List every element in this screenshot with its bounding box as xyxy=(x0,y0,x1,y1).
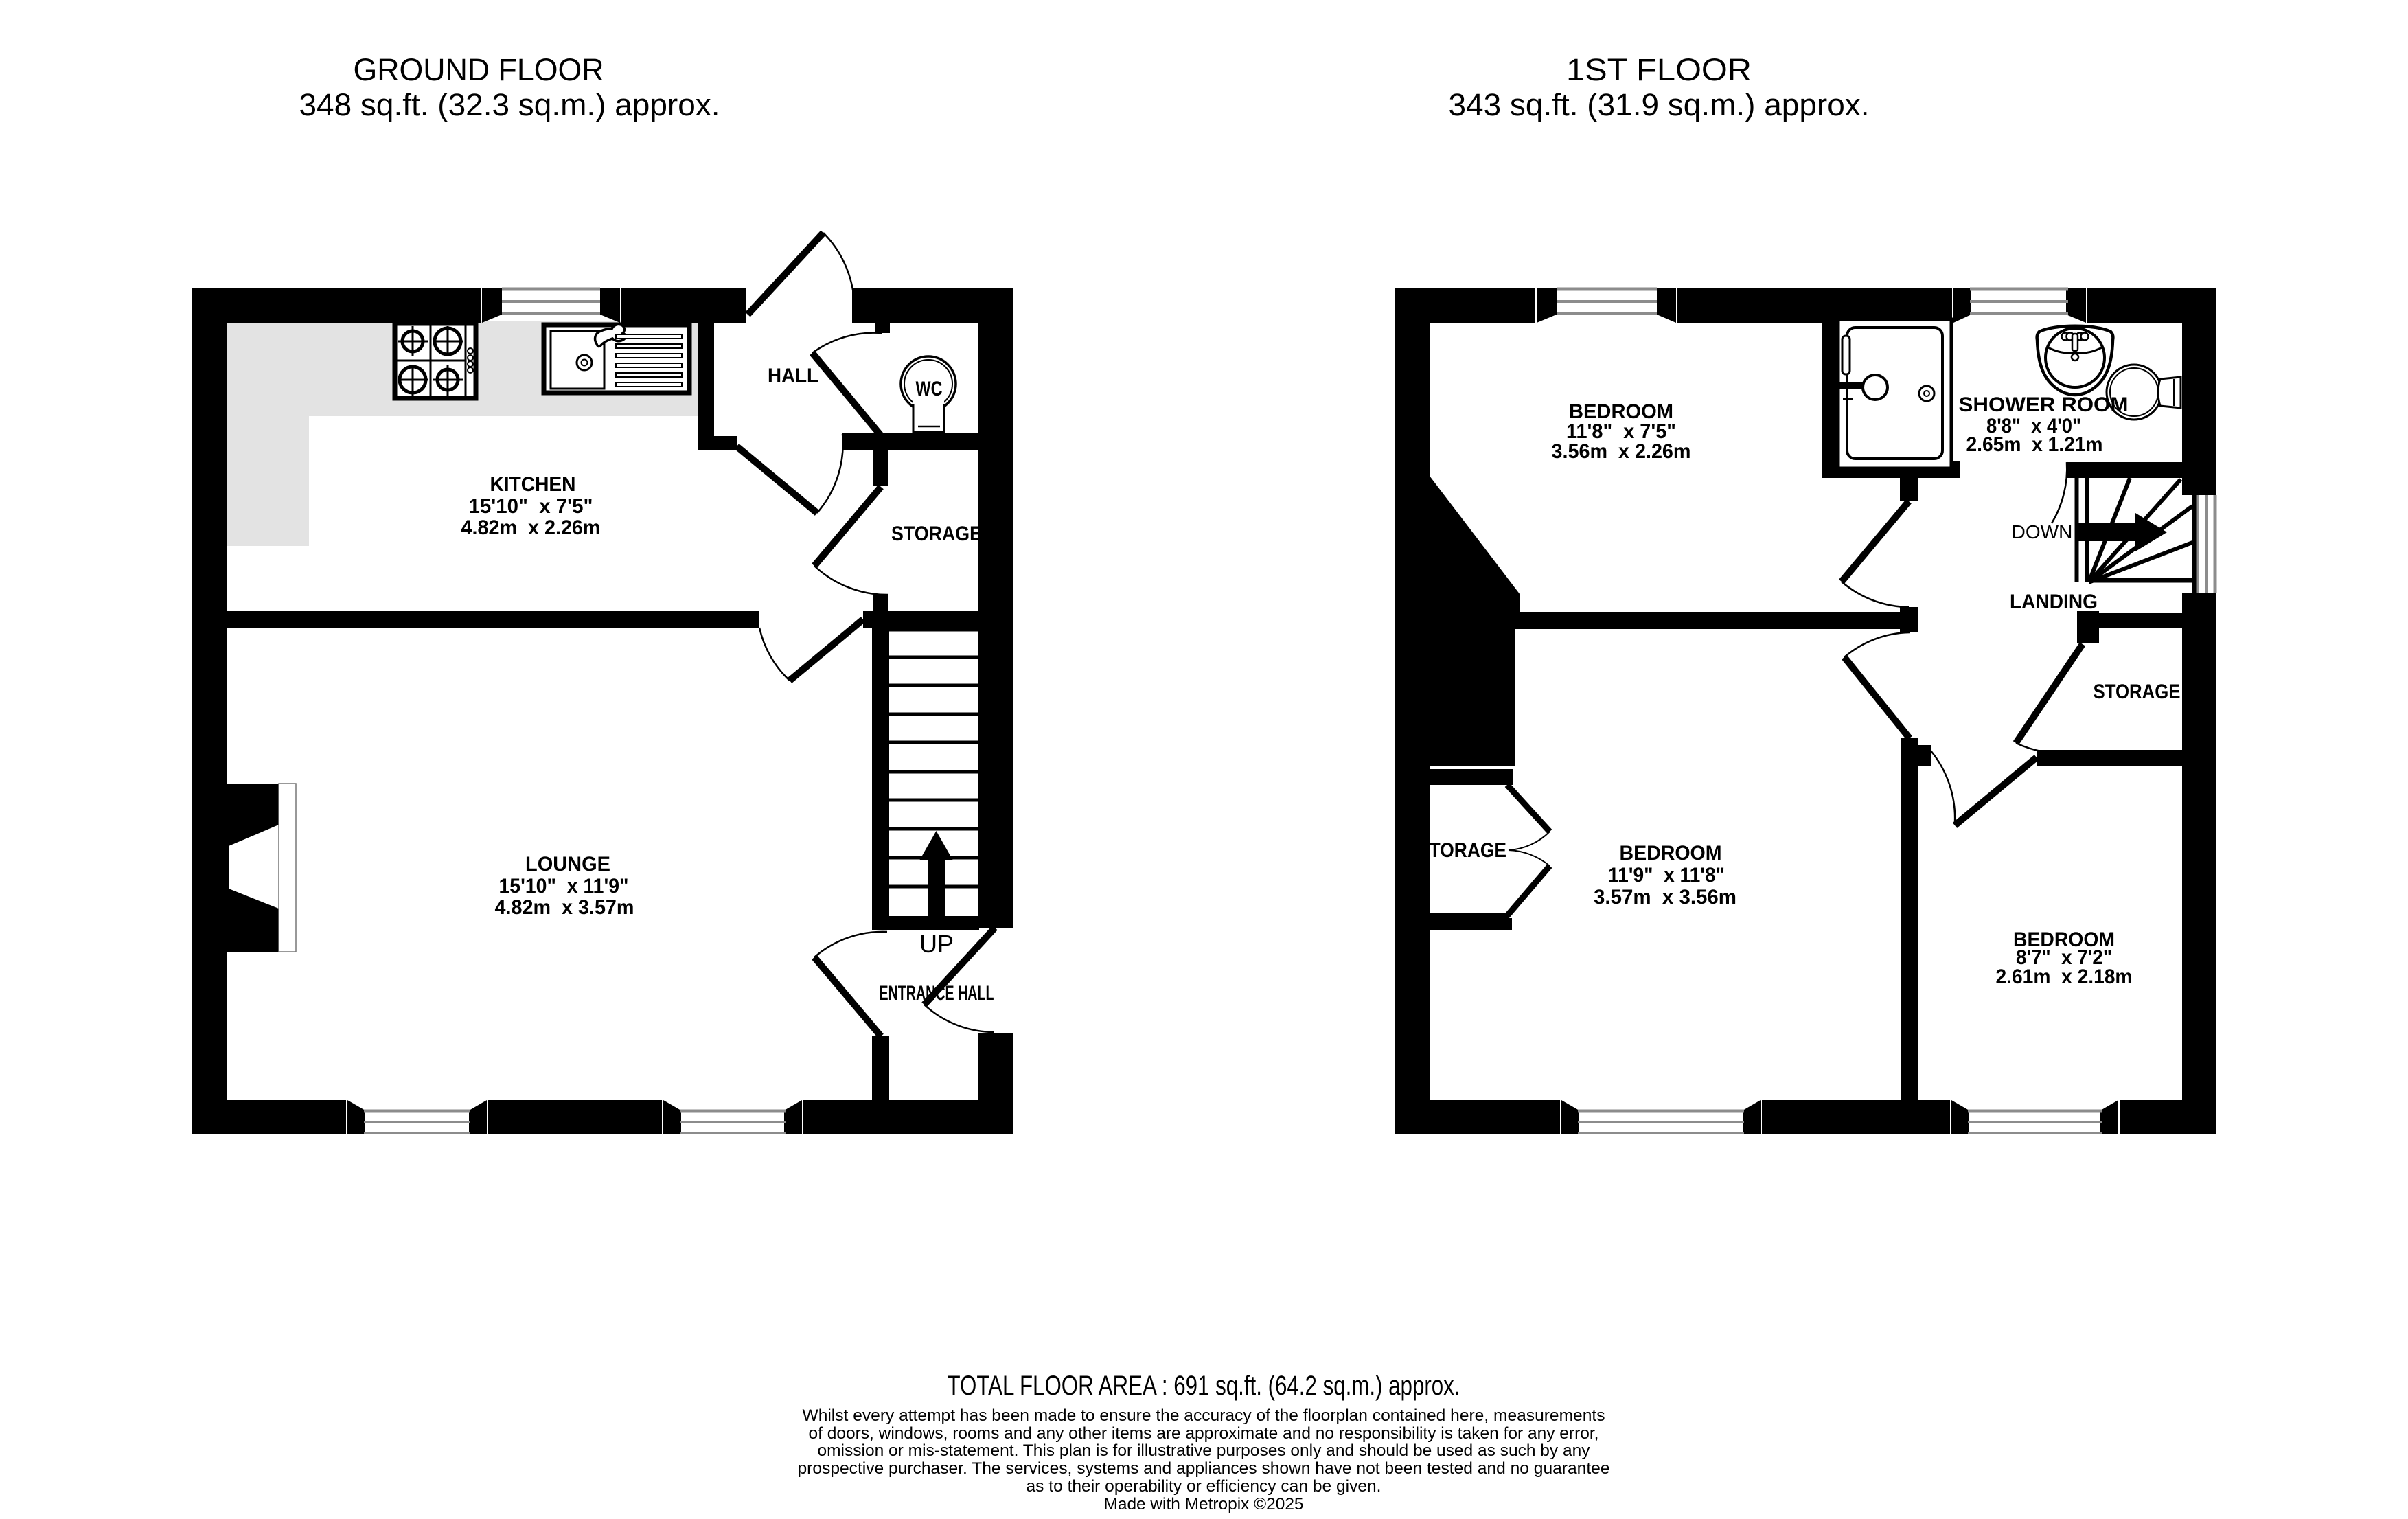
svg-text:BEDROOM: BEDROOM xyxy=(1620,842,1722,865)
svg-text:343 sq.ft. (31.9 sq.m.) approx: 343 sq.ft. (31.9 sq.m.) approx. xyxy=(1449,87,1870,122)
svg-text:STORAGE: STORAGE xyxy=(1417,839,1506,862)
svg-text:TOTAL FLOOR AREA : 691 sq.ft.: TOTAL FLOOR AREA : 691 sq.ft. (64.2 sq.m… xyxy=(948,1371,1460,1401)
svg-text:15'10" x 11'9": 15'10" x 11'9" xyxy=(499,875,629,898)
svg-text:1ST FLOOR: 1ST FLOOR xyxy=(1566,52,1752,87)
svg-text:11'9" x 11'8": 11'9" x 11'8" xyxy=(1608,864,1725,887)
svg-text:STORAGE: STORAGE xyxy=(891,523,982,545)
svg-text:omission or mis-statement. Thi: omission or mis-statement. This plan is … xyxy=(818,1441,1590,1460)
svg-text:KITCHEN: KITCHEN xyxy=(490,473,576,496)
svg-text:UP: UP xyxy=(919,930,954,958)
svg-text:SHOWER ROOM: SHOWER ROOM xyxy=(1959,393,2129,416)
svg-text:3.57m x 3.56m: 3.57m x 3.56m xyxy=(1594,886,1736,909)
svg-text:of doors, windows, rooms and a: of doors, windows, rooms and any other i… xyxy=(809,1424,1599,1443)
svg-text:LOUNGE: LOUNGE xyxy=(525,853,610,876)
svg-text:2.65m x 1.21m: 2.65m x 1.21m xyxy=(1966,433,2103,456)
svg-text:2.61m x 2.18m: 2.61m x 2.18m xyxy=(1996,966,2133,988)
svg-text:as to their operability or eff: as to their operability or efficiency ca… xyxy=(1027,1477,1381,1496)
svg-text:GROUND FLOOR: GROUND FLOOR xyxy=(354,52,604,87)
svg-text:15'10" x 7'5": 15'10" x 7'5" xyxy=(469,495,593,518)
svg-text:ENTRANCE HALL: ENTRANCE HALL xyxy=(880,982,994,1005)
svg-text:LANDING: LANDING xyxy=(2010,591,2098,613)
svg-text:Made with Metropix ©2025: Made with Metropix ©2025 xyxy=(1104,1495,1304,1514)
svg-text:STORAGE: STORAGE xyxy=(2094,681,2181,703)
svg-text:DOWN: DOWN xyxy=(2012,521,2073,542)
svg-text:348 sq.ft. (32.3 sq.m.) approx: 348 sq.ft. (32.3 sq.m.) approx. xyxy=(299,87,720,122)
svg-text:WC: WC xyxy=(916,378,943,400)
svg-text:prospective purchaser. The ser: prospective purchaser. The services, sys… xyxy=(798,1459,1610,1478)
svg-text:4.82m x 3.57m: 4.82m x 3.57m xyxy=(495,896,634,919)
svg-text:HALL: HALL xyxy=(768,365,818,387)
svg-text:4.82m x 2.26m: 4.82m x 2.26m xyxy=(461,516,601,539)
svg-text:Whilst every attempt has been: Whilst every attempt has been made to en… xyxy=(803,1406,1605,1425)
svg-text:3.56m x 2.26m: 3.56m x 2.26m xyxy=(1552,440,1691,463)
